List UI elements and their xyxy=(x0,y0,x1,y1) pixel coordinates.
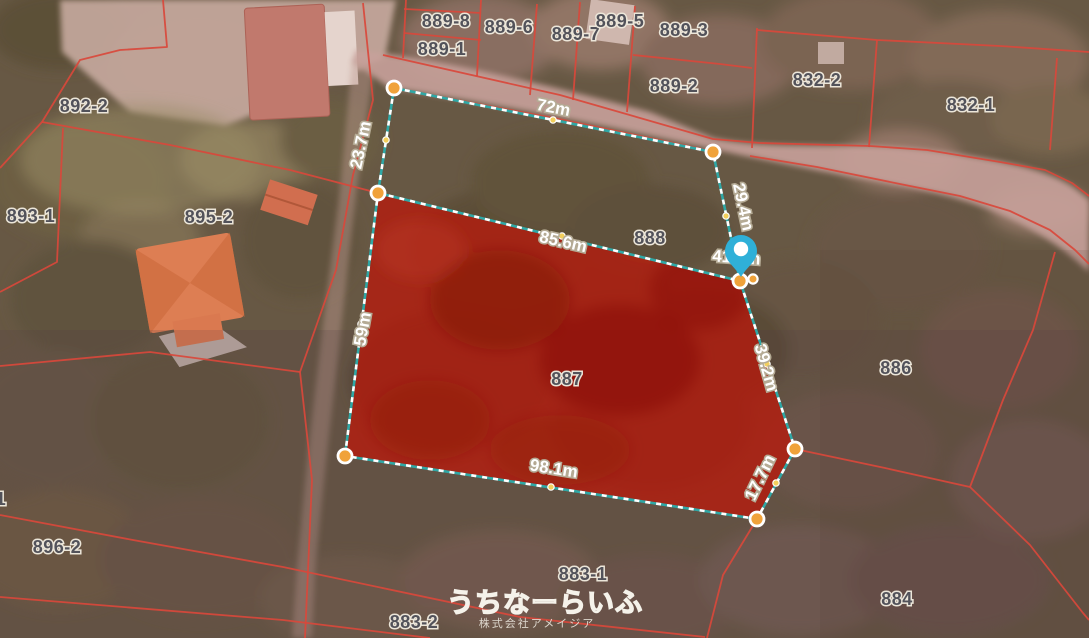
parcel-label-886: 886 xyxy=(880,358,912,378)
parcel-label-889-3: 889-3 xyxy=(660,20,709,40)
right-tint xyxy=(820,250,1089,638)
parcel-label-889-7: 889-7 xyxy=(552,24,601,44)
parcel-label-883-1: 883-1 xyxy=(559,564,608,584)
parcel-label-884: 884 xyxy=(881,589,913,609)
parcel-label-892-2: 892-2 xyxy=(60,96,109,116)
map-canvas[interactable]: 72m 23.7m 29.4m 41.9m 85.6m 59m 39.2m 17… xyxy=(0,0,1089,638)
parcel-label-832-2: 832-2 xyxy=(793,70,842,90)
pin-inner-circle xyxy=(734,242,748,256)
parcel-label-895-2: 895-2 xyxy=(185,207,234,227)
parcel-label-partial: 1 xyxy=(0,489,6,509)
parcel-label-832-1: 832-1 xyxy=(947,95,996,115)
parcel-label-889-2: 889-2 xyxy=(650,76,699,96)
parcel-label-889-5: 889-5 xyxy=(596,11,645,31)
parcel-label-889-8: 889-8 xyxy=(422,11,471,31)
parcel-label-893-1: 893-1 xyxy=(7,206,56,226)
parcel-label-888: 888 xyxy=(634,228,666,248)
parcel-label-896-2: 896-2 xyxy=(33,537,82,557)
parcel-label-889-1: 889-1 xyxy=(418,39,467,59)
watermark-brand: うちなーらいふ xyxy=(447,588,643,618)
parcel-label-883-2: 883-2 xyxy=(390,612,439,632)
watermark-company: 株式会社アメイジア xyxy=(479,616,595,630)
parcel-label-889-6: 889-6 xyxy=(485,17,534,37)
parcel-label-887: 887 xyxy=(551,369,583,389)
